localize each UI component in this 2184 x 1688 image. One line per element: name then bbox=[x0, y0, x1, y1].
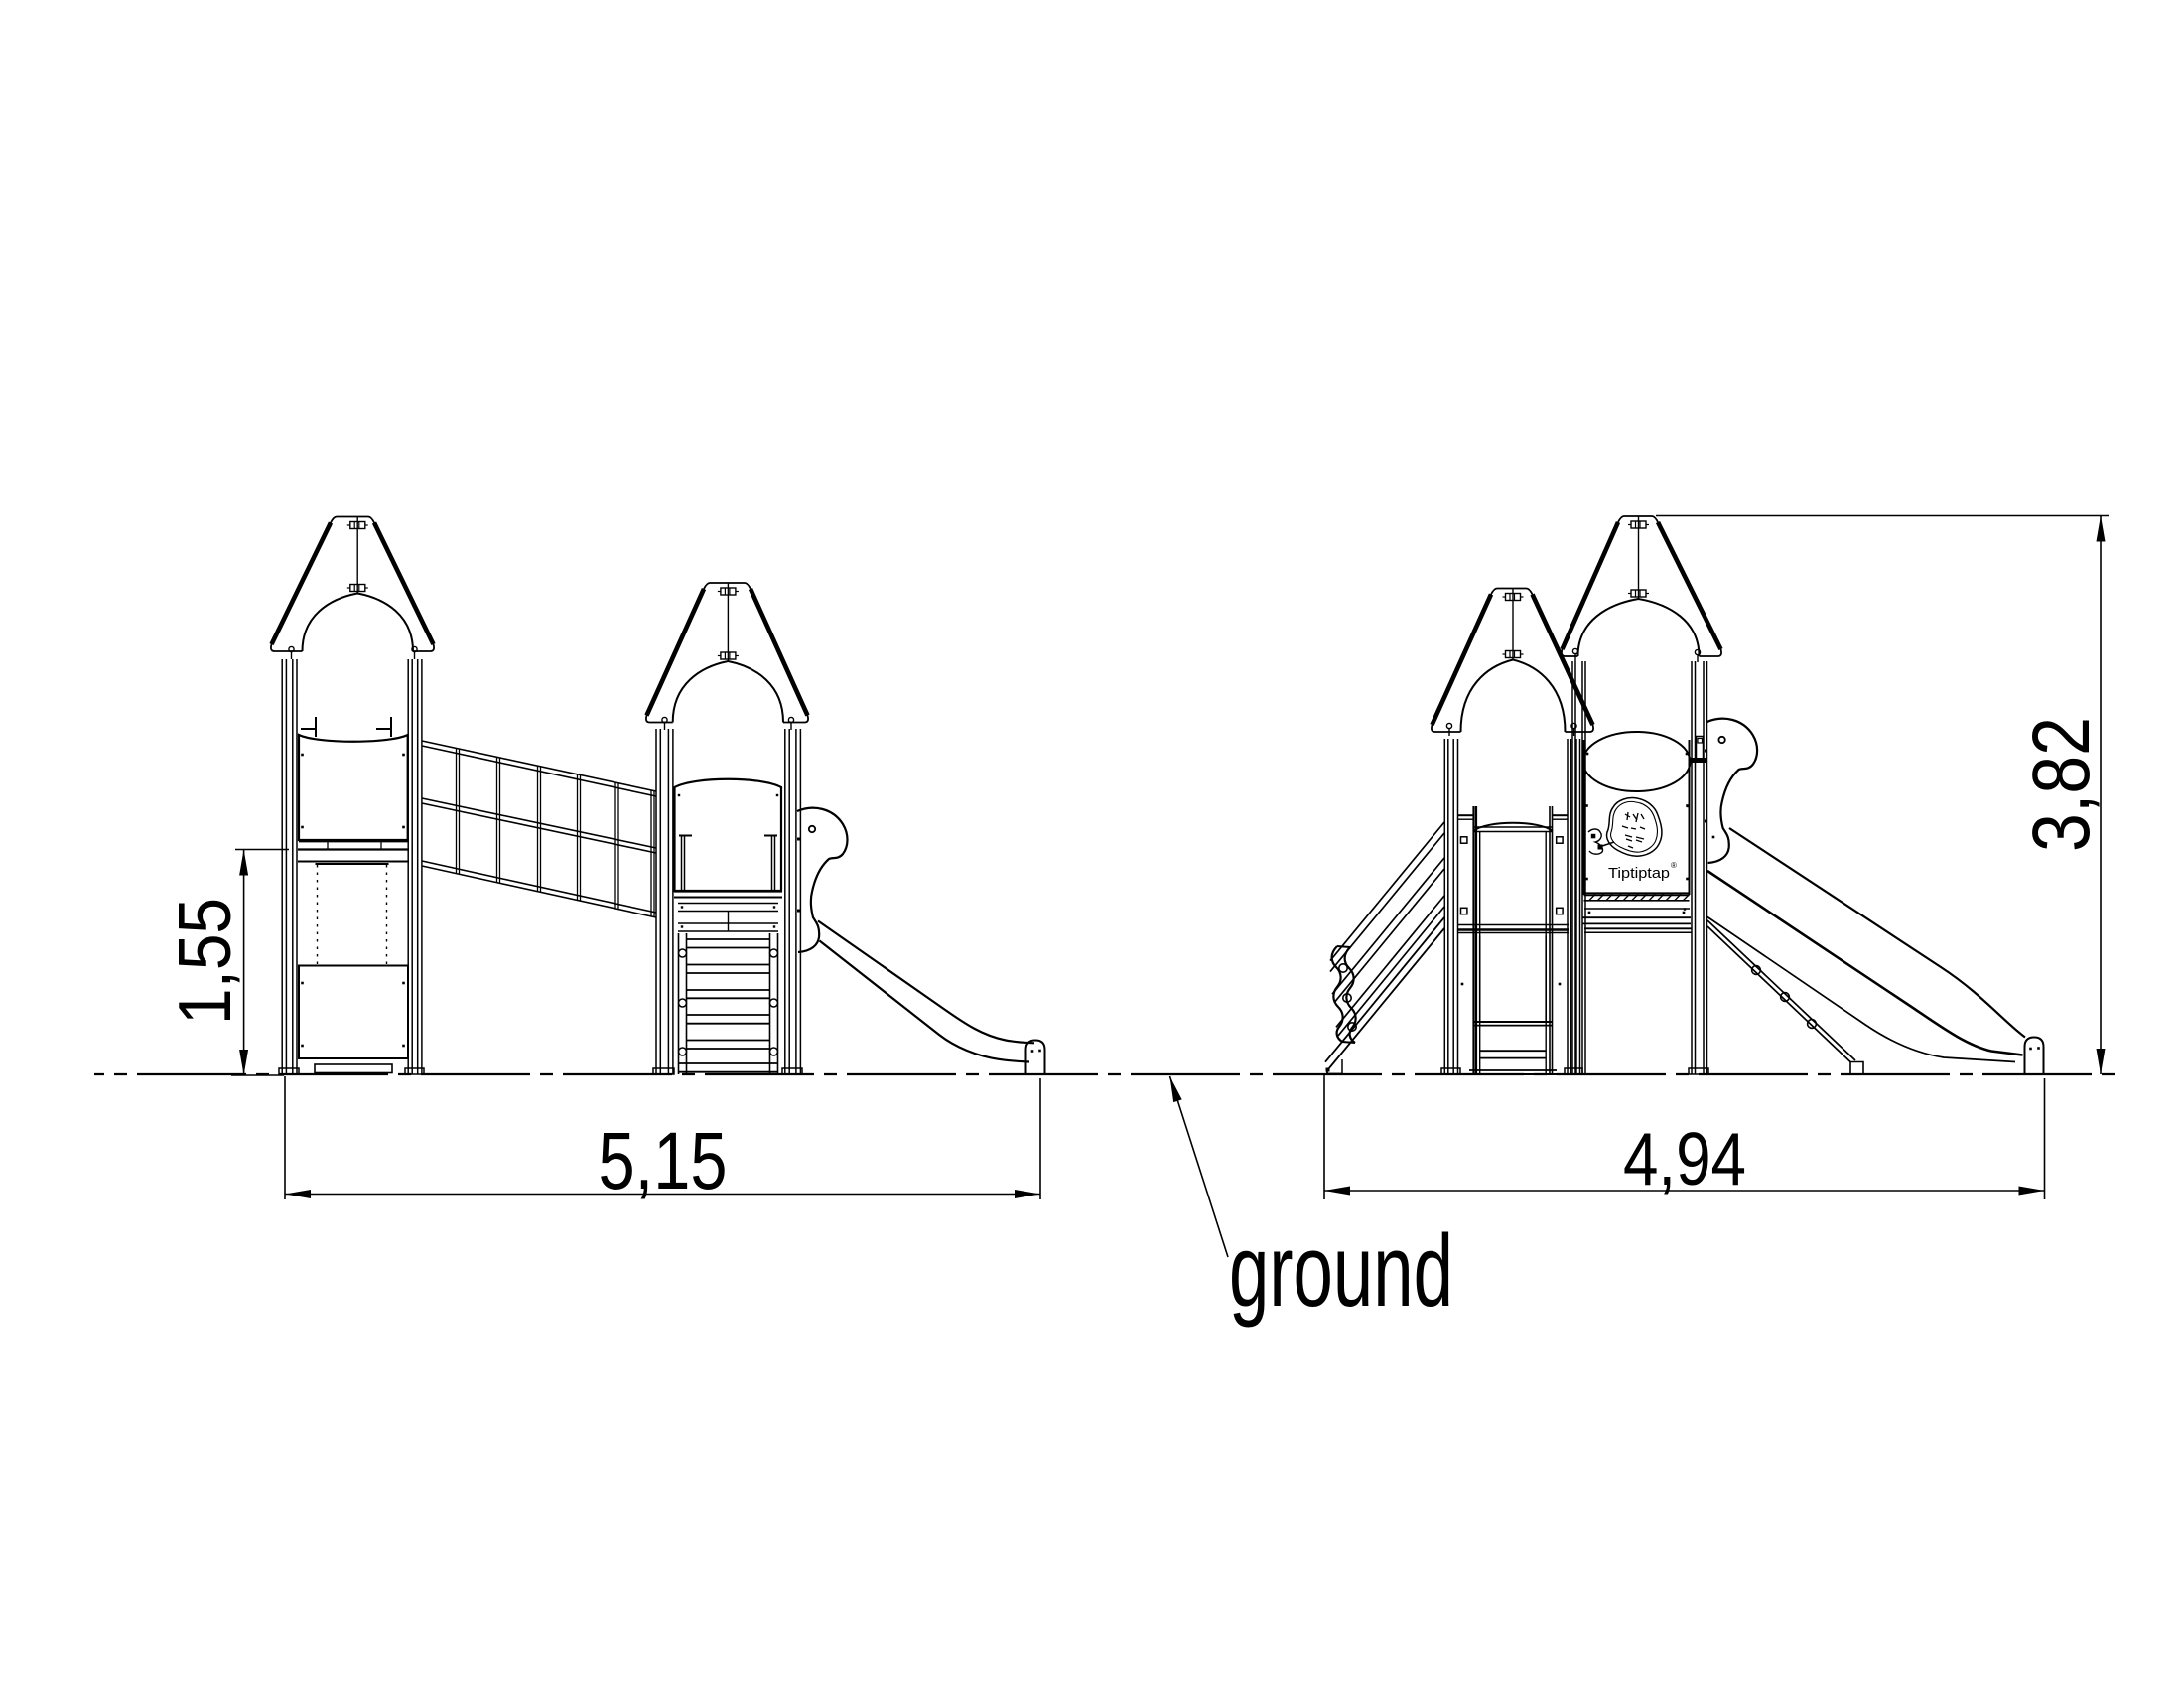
svg-text:1,55: 1,55 bbox=[163, 898, 246, 1025]
svg-text:3,82: 3,82 bbox=[2016, 717, 2107, 852]
svg-text:®: ® bbox=[1671, 861, 1677, 870]
svg-text:4,94: 4,94 bbox=[1623, 1117, 1746, 1200]
svg-text:Tiptiptap: Tiptiptap bbox=[1608, 865, 1670, 882]
svg-text:ground: ground bbox=[1229, 1213, 1453, 1328]
svg-text:5,15: 5,15 bbox=[599, 1116, 728, 1206]
